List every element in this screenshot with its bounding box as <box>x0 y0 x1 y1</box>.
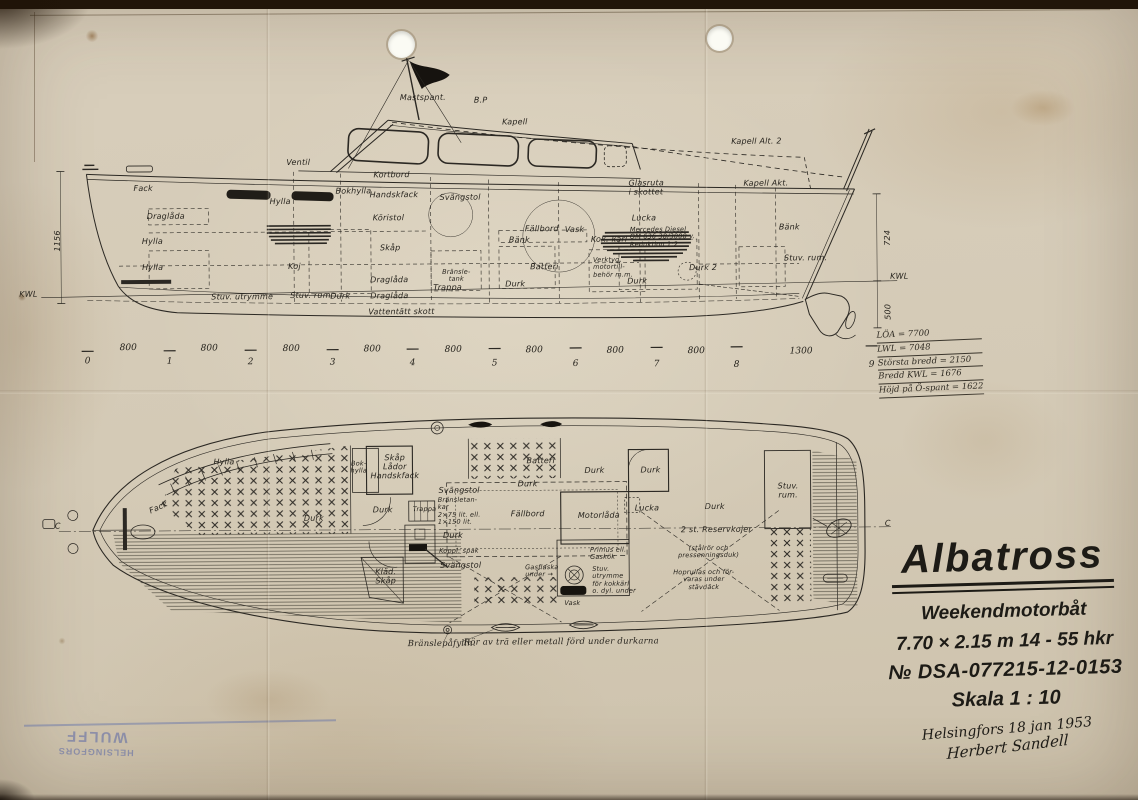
plabel-durk-bow: Durk <box>304 514 324 523</box>
gap-800-3: 800 <box>283 344 300 354</box>
station-1: 1 <box>167 357 173 367</box>
plabel-svangstol-fwd: Svängstol <box>439 486 480 495</box>
plabel-bransletankar: Bränsletan- kar 2×75 lit. ell. 1×150 lit… <box>438 497 481 527</box>
plabel-trappa: Trappa <box>413 506 437 514</box>
gap-800-4: 800 <box>364 344 381 354</box>
label-bp: B.P <box>474 96 488 105</box>
label-koristol: Köristol <box>373 213 404 222</box>
label-hylla-3: Hylla <box>270 197 291 206</box>
wulff-stamp: WULFF HELSINGFORS <box>32 724 161 758</box>
label-kok-karl: Kok. kärl <box>591 235 627 244</box>
plabel-bok-hylla: Bok- hylla <box>350 460 367 475</box>
spec-list: LÖA = 7700 LWL = 7048 Största bredd = 21… <box>876 325 983 398</box>
station-2: 2 <box>248 357 254 367</box>
plabel-primus: Primus ell. Gaskök <box>590 547 626 562</box>
backdrop-bottom-edge <box>0 794 1138 800</box>
plabel-klad-skap: Kläd. Skåp <box>375 567 396 586</box>
label-stuv-rum-aft: Stuv. rum. <box>784 253 827 262</box>
station-4: 4 <box>410 358 416 368</box>
plabel-skap-lador: Skåp Lådor Handskfack <box>370 453 419 481</box>
plabel-gasflaska: Gasflaska under → <box>525 564 559 579</box>
label-koj: Koj <box>288 262 301 271</box>
boat-name: Albatross <box>882 534 1123 581</box>
label-lucka-side: Lucka <box>632 213 657 222</box>
plabel-durk-right2: Durk <box>640 465 660 474</box>
plabel-svangstol-aft: Svängstol <box>440 561 481 570</box>
label-kapell-akt: Kapell Akt. <box>743 178 788 188</box>
punch-hole-right <box>707 26 732 51</box>
plabel-fallbord: Fällbord <box>511 509 545 518</box>
label-handskfack-side: Handskfack <box>370 190 419 200</box>
boat-size: 7.70 × 2.15 m 14 - 55 hkr <box>884 629 1124 655</box>
backdrop-bottom-left-corner <box>0 760 60 800</box>
drawing-area: Mastspant. B.P Kapell Kapell Alt. 2 Kape… <box>0 0 1138 800</box>
label-hylla-2: Hylla <box>142 263 163 272</box>
title-block: Albatross Weekendmotorbåt 7.70 × 2.15 m … <box>882 534 1128 761</box>
plan-view <box>42 416 892 645</box>
label-draglada-3: Draglåda <box>370 291 408 300</box>
label-batteri-side: Batteri <box>530 262 559 271</box>
label-kwl-left: KWL <box>19 290 37 299</box>
gap-800-1: 800 <box>120 343 137 353</box>
plabel-durk-center: Durk <box>518 479 538 488</box>
blueprint-sheet: Mastspant. B.P Kapell Kapell Alt. 2 Kape… <box>0 0 1138 800</box>
station-9: 9 <box>869 360 875 370</box>
label-draglada-2: Draglåda <box>370 275 408 284</box>
plabel-batteri: Batteri <box>526 456 555 465</box>
label-ventil: Ventil <box>286 158 310 167</box>
station-7: 7 <box>654 359 660 369</box>
label-vask-side: Vask <box>565 225 585 234</box>
label-stuv-rum-fwd: Stuv. rum. <box>290 291 333 300</box>
station-3: 3 <box>330 358 336 368</box>
label-durk-side-1: Durk <box>505 279 525 288</box>
plabel-stuv-rum: Stuv. rum. <box>778 481 799 500</box>
side-view <box>40 54 898 352</box>
section-c-left: C <box>55 522 61 531</box>
punch-hole-left <box>388 31 415 58</box>
station-6: 6 <box>573 359 579 369</box>
dim-724: 724 <box>883 230 892 246</box>
gap-800-7: 800 <box>607 346 624 356</box>
plabel-ror-note: Rör av trä eller metall förd under durka… <box>464 636 659 648</box>
station-8: 8 <box>734 360 740 370</box>
plabel-motorlada: Motorlåda <box>578 511 620 520</box>
label-fack-side: Fack <box>133 184 152 193</box>
label-vattentatt-skott: Vattentätt skott <box>368 307 434 317</box>
label-bank-aft: Bänk <box>779 222 800 231</box>
label-bokhylla-side: Bokhylla <box>336 186 372 195</box>
dim-500: 500 <box>883 304 892 320</box>
plabel-stalror: (stålrör och pressenningsduk) <box>678 545 739 560</box>
label-mercedes-engine: Mercedes Diesel OM 636 38/3000 v. Redukt… <box>630 226 695 249</box>
plabel-vask: Vask <box>564 600 580 608</box>
gap-800-8: 800 <box>688 346 705 356</box>
label-durk-side-3: Durk <box>330 292 350 301</box>
label-fallbord-side: Fällbord <box>525 224 559 233</box>
label-skap-side: Skåp <box>380 243 401 252</box>
label-bransletank-side: Bränsle- tank <box>442 269 470 284</box>
gap-800-5: 800 <box>445 345 462 355</box>
label-glasruta: Glasruta i skottet <box>628 178 664 197</box>
plabel-koppl-spak: Koppl. spak <box>439 548 479 556</box>
gap-800-6: 800 <box>526 345 543 355</box>
backdrop-top-edge <box>0 0 1138 9</box>
label-mastspant: Mastspant. <box>400 93 446 103</box>
label-kapell-alt2: Kapell Alt. 2 <box>731 137 782 147</box>
station-5: 5 <box>492 358 498 368</box>
label-durk2: Durk 2 <box>689 263 717 272</box>
section-c-right: C <box>885 519 891 528</box>
plabel-hoprullas: Hoprullas och för- varas under stävdäck <box>673 569 734 592</box>
label-trappa-side: Trappa <box>433 283 462 292</box>
label-svangstol-side: Svängstol <box>440 193 481 202</box>
label-kapell: Kapell <box>502 117 528 126</box>
boat-type: Weekendmotorbåt <box>884 599 1124 625</box>
label-hylla-1: Hylla <box>142 237 163 246</box>
label-durk-side-2: Durk <box>627 276 647 285</box>
label-draglada-1: Draglåda <box>147 212 185 221</box>
drawing-scale: Skala 1 : 10 <box>886 686 1126 713</box>
label-kortbord: Kortbord <box>373 170 409 179</box>
label-kwl-right: KWL <box>890 272 908 281</box>
stamp-line1: WULFF <box>65 727 128 746</box>
gap-1300: 1300 <box>790 346 813 356</box>
gap-800-2: 800 <box>201 343 218 353</box>
plabel-durk-right1: Durk <box>584 466 604 475</box>
dim-1156: 1156 <box>53 230 62 251</box>
plabel-durk-left: Durk <box>373 505 393 514</box>
label-bank-side: Bänk <box>509 235 530 244</box>
drawing-number: № DSA-077215-12-0153 <box>885 657 1125 684</box>
station-0: 0 <box>85 356 91 366</box>
label-stuv-utrymme: Stuv. utrymme <box>211 292 273 302</box>
plabel-durk-mid: Durk <box>443 531 463 540</box>
plabel-hylla: Hylla <box>213 457 234 466</box>
plabel-lucka: Lucka <box>635 503 660 512</box>
plabel-reservkojer: 2 st. Reservkojer <box>681 525 752 535</box>
plabel-durk-right3: Durk <box>705 502 725 511</box>
plabel-stuv-kokkarl: Stuv. utrymme för kokkärl o. dyl. under <box>592 566 636 596</box>
